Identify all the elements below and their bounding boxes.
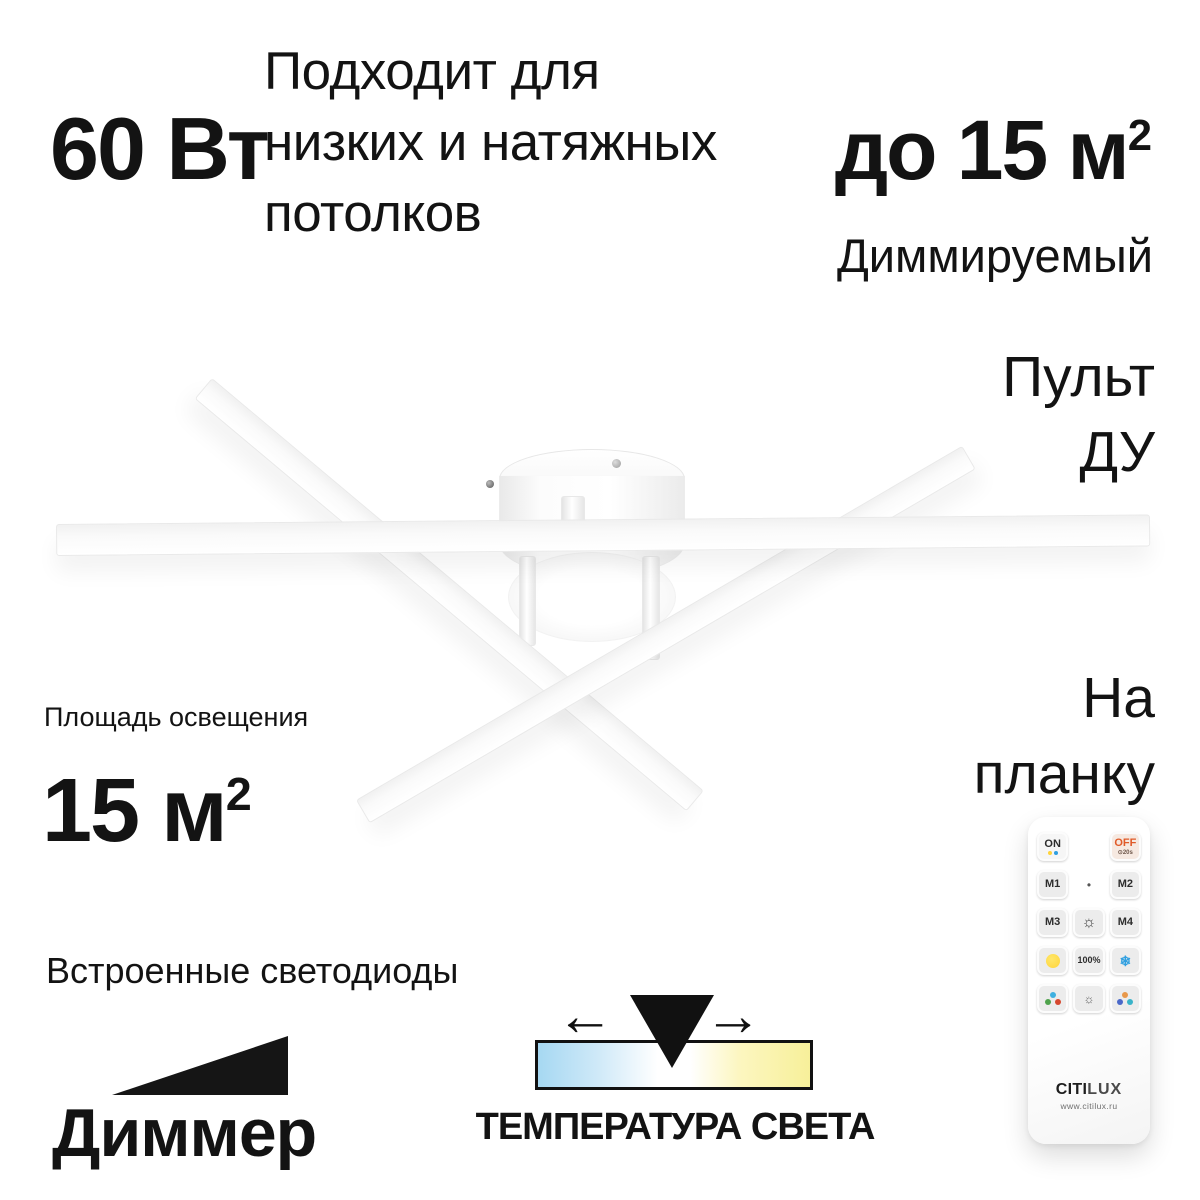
remote-note: Пульт ДУ [1002,340,1155,490]
remote-buttons: ON OFF ⊙20s M1 • M2 M3 ☼ M4 100% ❄ [1037,832,1141,1013]
on-mode-dots-icon [1048,851,1058,855]
remote-spacer [1073,832,1104,861]
ceilings-note: Подходит для низких и натяжных потолков [264,36,717,249]
warm-light-icon [1046,954,1060,968]
arrow-left-icon: ← [556,982,614,1049]
off-timer-label: ⊙20s [1118,850,1133,856]
arrow-right-icon: → [704,982,762,1049]
remote-100-percent-button: 100% [1073,946,1104,975]
sun-dim-icon: ☼ [1083,993,1094,1005]
remote-m4-button: M4 [1110,908,1141,937]
remote-note-line-1: Пульт [1002,340,1155,415]
remote-off-button: OFF ⊙20s [1110,832,1141,861]
sun-icon: ☼ [1082,915,1097,931]
temperature-pointer-icon [630,995,714,1068]
lamp-stem [519,556,536,646]
remote-brightness-down-button: ☼ [1073,984,1104,1013]
temperature-label: ТЕМПЕРАТУРА СВЕТА [470,1106,880,1149]
remote-cold-light-button: ❄ [1110,946,1141,975]
ceilings-line-2: низких и натяжных [264,107,717,178]
canopy-screw-icon [486,480,494,488]
remote-on-button: ON [1037,832,1068,861]
built-in-leds-label: Встроенные светодиоды [46,950,458,992]
citilux-website: www.citilux.ru [1028,1101,1150,1111]
remote-m2-button: M2 [1110,870,1141,899]
max-area-label: до 15 м2 [835,102,1150,199]
lighting-area-value: 15 м2 [42,760,250,863]
citilux-logo: CITILUX [1028,1081,1150,1099]
remote-note-line-2: ДУ [1002,415,1155,490]
remote-color-cycle-button [1110,984,1141,1013]
color-cycle-icon [1117,992,1133,1006]
remote-ir-dot: • [1073,870,1104,899]
ceilings-line-1: Подходит для [264,36,717,107]
mount-note: На планку [974,660,1155,812]
remote-rgb-mode-button [1037,984,1068,1013]
remote-warm-light-button [1037,946,1068,975]
remote-control: ON OFF ⊙20s M1 • M2 M3 ☼ M4 100% ❄ [1028,817,1150,1144]
lighting-area-caption: Площадь освещения [44,702,308,733]
remote-m1-button: M1 [1037,870,1068,899]
mount-note-line-1: На [974,660,1155,736]
remote-m3-button: M3 [1037,908,1068,937]
ceilings-line-3: потолков [264,178,717,249]
max-area-superscript: 2 [1128,111,1150,160]
dimmer-ramp-icon [112,1036,288,1095]
remote-brightness-up-button: ☼ [1073,908,1104,937]
dimmable-label: Диммируемый [837,228,1153,283]
wattage-label: 60 Вт [50,98,268,200]
rgb-mode-icon [1045,992,1061,1006]
lamp-light-bar-horizontal [56,514,1150,556]
canopy-screw-icon [612,459,621,468]
product-infographic: 60 Вт Подходит для низких и натяжных пот… [0,0,1200,1200]
dimmer-label: Диммер [52,1094,316,1172]
area-superscript: 2 [226,768,250,820]
snowflake-icon: ❄ [1119,954,1131,968]
mount-note-line-2: планку [974,736,1155,812]
